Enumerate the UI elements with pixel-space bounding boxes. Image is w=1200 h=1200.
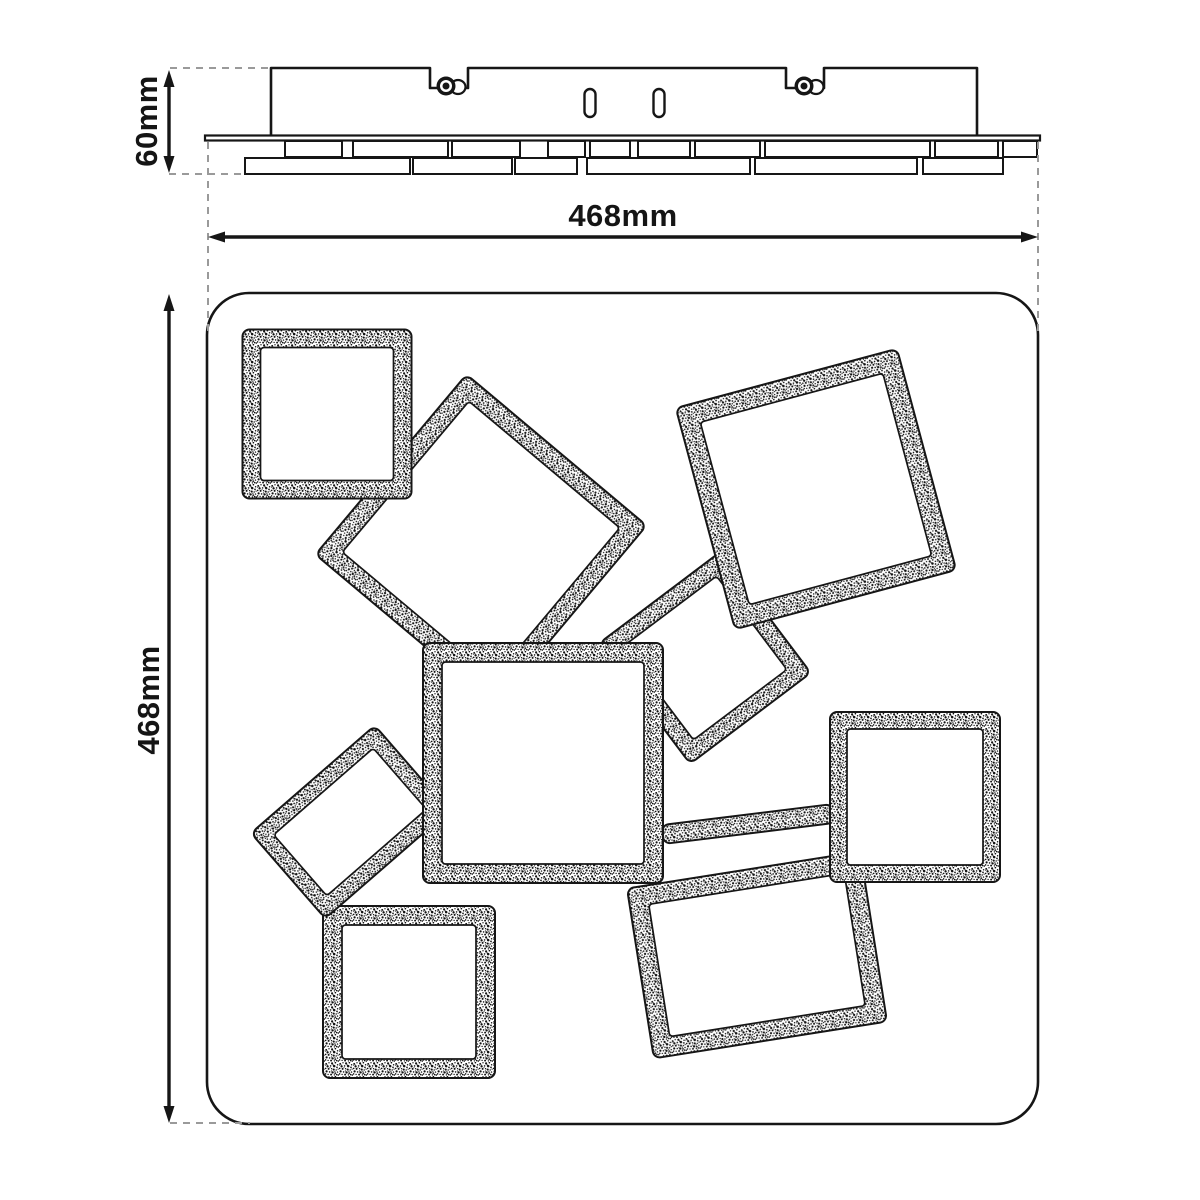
keyhole-slot xyxy=(585,89,596,117)
panel-edge-segment xyxy=(587,158,750,174)
dimension-arrowhead xyxy=(164,156,175,173)
width-dimension-label: 468mm xyxy=(568,198,677,233)
dimension-arrowhead xyxy=(164,70,175,87)
dimension-arrowhead xyxy=(164,294,175,311)
dimension-diagram: 60mm 468mm 468mm xyxy=(0,0,1200,1200)
panel-edge-segment xyxy=(695,141,760,157)
panel-edge-segment xyxy=(413,158,512,174)
panel-edge-segment xyxy=(245,158,410,174)
panel-edge-segment xyxy=(638,141,690,157)
panel-edge-segment xyxy=(515,158,577,174)
panel-edge-segment xyxy=(590,141,630,157)
dimension-arrowhead xyxy=(1021,232,1038,243)
panel-edge-segment xyxy=(548,141,585,157)
baseplate xyxy=(205,136,1040,141)
mounting-screw xyxy=(443,83,450,90)
mounting-screw xyxy=(801,83,808,90)
square-panel-7-inner xyxy=(342,925,476,1059)
panel-edge-segment xyxy=(1003,141,1037,157)
panel-edge-segment xyxy=(452,141,520,157)
square-panel-9 xyxy=(830,712,1000,882)
square-panel-1 xyxy=(243,330,412,499)
keyhole-slot xyxy=(654,89,665,117)
panel-edge-segment xyxy=(935,141,998,157)
top-view xyxy=(207,293,1038,1124)
dimension-arrowhead xyxy=(164,1106,175,1123)
panel-edge-segment xyxy=(285,141,342,157)
panel-edge-segment xyxy=(923,158,1003,174)
side-view xyxy=(205,68,1040,174)
height-dimension-label: 60mm xyxy=(129,75,164,167)
square-panel-1-inner xyxy=(261,348,394,481)
square-panel-5 xyxy=(423,643,663,883)
canopy-outline xyxy=(271,68,977,137)
panel-edge-segment xyxy=(755,158,917,174)
panel-edge-segment xyxy=(353,141,448,157)
dimension-arrowhead xyxy=(208,232,225,243)
square-panel-7 xyxy=(323,906,495,1078)
depth-dimension-label: 468mm xyxy=(131,645,166,754)
square-panel-9-inner xyxy=(847,729,983,865)
panel-edge-segment xyxy=(765,141,930,157)
square-panel-5-inner xyxy=(442,662,644,864)
